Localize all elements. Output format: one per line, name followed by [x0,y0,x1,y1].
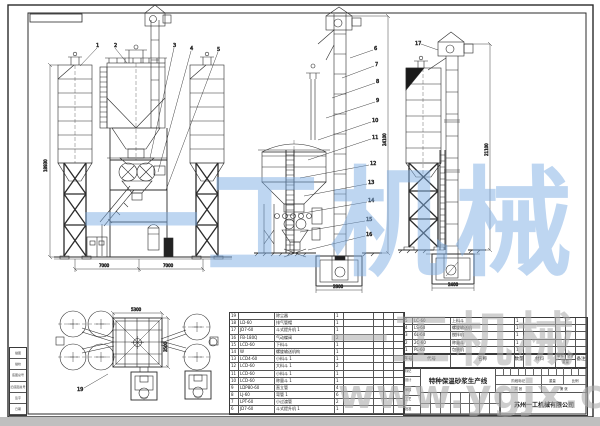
signature-cell [431,393,441,404]
bom-table-left: 19除尘器118LD-60排气管帽117JD7-60斗式提升机 1116FB-1… [229,312,405,415]
bom-cell [374,335,384,342]
bom-cell: 直立管 [275,385,335,392]
bom-cell [374,371,384,378]
bom-cell [384,320,394,327]
bom-cell: 10 [230,378,239,385]
signature-cell [441,404,451,415]
bom-cell [524,340,556,347]
bom-cell [524,332,556,339]
bom-header-no: 序号 [404,354,413,368]
stage-mark-cell [519,368,527,376]
bom-cell: LC-60 [413,318,451,325]
bom-cell: 1 [335,327,344,334]
stage-mark-cell [542,368,550,376]
bom-cell: 大料斗 1 [275,363,335,370]
binding-strip-label: 描校 [10,359,26,370]
bom-cell: 小过渡管 [275,399,335,406]
bom-cell [524,318,556,325]
bom-cell: LS-60 [413,325,451,332]
bom-cell: 上料斗 [451,318,515,325]
stage-label-row: 阶段标记 重量 比例 [496,376,587,385]
bom-cell [374,342,384,349]
bom-cell: 1 [515,340,524,347]
bom-cell: 1 [335,371,344,378]
signature-cell [421,393,431,404]
callout-14: 14 [368,198,374,204]
callout-4: 4 [190,46,193,52]
callout-17: 17 [415,41,421,47]
bom-cell: 1 [335,406,344,413]
dim-side-pit: 2800 [333,284,344,289]
bom-header-qty: 数量 [515,354,524,368]
signature-cell [461,404,471,415]
dim-right-height: 21100 [484,143,489,156]
bom-cell [374,363,384,370]
bom-cell: W [239,349,275,356]
right-silo-truss [196,163,218,256]
bom-cell: 搅拌机 [451,332,515,339]
bom-cell [384,392,394,399]
callout-11: 11 [372,135,378,141]
bom-header-remark: 备注 [576,354,587,368]
bom-cell: LCD-60 [239,363,275,370]
bom-cell [374,392,384,399]
stage-mark-cell [549,368,557,376]
signature-cell [470,404,480,415]
dim-side-height: 24100 [382,133,387,146]
bom-header-weight-total: 总计 [566,354,575,359]
bom-cell [566,325,576,332]
bom-cell [374,349,384,356]
signature-cell [470,393,480,404]
bom-cell [566,332,576,339]
bom-cell: 4 [335,385,344,392]
bom-header-code: 代号 [413,354,451,368]
bom-cell: 15 [230,342,239,349]
signature-cell [451,393,461,404]
callout-15: 15 [366,217,372,223]
signature-cell [480,393,490,404]
callout-3: 3 [173,43,176,49]
bom-cell: 18 [230,320,239,327]
bom-header-weight-label: 重量 [556,360,575,365]
signoff-label: 工艺 [404,396,420,405]
bom-cell: 斗式提升机 1 [275,327,335,334]
sheet-total: 共 张 [496,385,542,392]
bom-cell: 1 [335,320,344,327]
dim-plan-depth: 3500 [163,341,168,352]
bom-cell [566,340,576,347]
bom-cell: 3 [404,332,413,339]
bom-cell [384,327,394,334]
callout-7: 7 [375,62,378,68]
bom-cell: 1 [515,318,524,325]
stage-mark-cell [534,368,542,376]
bom-cell: 螺旋输送机 [451,325,515,332]
bom-cell [374,399,384,406]
signature-cell [480,404,490,415]
stage-mark-cell [526,368,534,376]
bom-cell: 12 [230,363,239,370]
bom-header-material: 材料 [524,354,556,368]
signoff-label: 设计 [404,377,420,386]
dim-front-height: 18930 [43,159,48,172]
bom-cell [374,327,384,334]
bom-cell: 1 [335,349,344,356]
bom-cell: 9 [230,385,239,392]
bom-cell [344,320,374,327]
bom-cell: 除尘器 [275,313,335,320]
bom-cell: 2 [335,363,344,370]
binding-edge-block: 描图描校底图总号旧底图总号签字日期 [9,347,27,416]
bom-cell [384,406,394,413]
title-block-signature-grid [421,393,501,415]
callout-13: 13 [368,180,374,186]
bom-cell [344,356,374,363]
bom-cell: 2C-60 [413,340,451,347]
bom-cell [556,318,566,325]
bom-cell: 8 [230,392,239,399]
bom-cell: 小料斗 1 [275,371,335,378]
silo-elevator-view: 17 21100 2400 [398,32,492,291]
stage-mark-cell [579,368,587,376]
bom-cell [556,340,566,347]
callout-19: 19 [77,387,83,393]
signature-cell [461,393,471,404]
bom-cell [374,356,384,363]
stage-mark-cell [564,368,572,376]
bom-cell [384,349,394,356]
bom-cell [556,325,566,332]
bom-cell [344,363,374,370]
stage-mark-cell [572,368,580,376]
bom-cell [344,335,374,342]
bom-cell: 称量斗 1 [275,378,335,385]
bom-cell: LCD-60 [239,371,275,378]
bom-cell [384,378,394,385]
bom-cell [344,406,374,413]
bom-cell [344,371,374,378]
bom-cell [524,325,556,332]
bom-cell [374,313,384,320]
bom-cell [344,378,374,385]
title-block-stage-grid: 阶段标记 重量 比例 共 张 第 张 [496,368,587,393]
bom-cell: LPT-60 [239,399,275,406]
signature-cell [421,404,431,415]
drawing-title: 特种保温砂浆生产线 [421,368,496,393]
binding-strip-label: 底图总号 [10,370,26,381]
dim-front-bay-right: 7000 [163,263,174,268]
bom-cell [576,332,587,339]
stage-mark-cells [496,368,587,376]
bom-cell: 16 [230,335,239,342]
dim-right-pit: 2400 [448,282,459,287]
left-silo-truss [64,163,86,256]
callout-9: 9 [376,98,379,104]
bom-cell: 弯管 1 [275,392,335,399]
bom-cell [344,385,374,392]
callout-6: 6 [374,46,377,52]
bom-cell: 2 [335,399,344,406]
bom-cell: 13 [230,356,239,363]
right-view-truss [409,163,438,247]
bom-cell: 19 [230,313,239,320]
bom-header-weight: 单件 总计 重量 [556,354,576,368]
bom-cell: LCD-60 [239,378,275,385]
bom-cell [374,378,384,385]
bom-cell: LCD-60 [239,342,275,349]
bom-cell: LJ-60 [239,392,275,399]
binding-strip-label: 日期 [10,404,26,415]
bom-cell [239,313,275,320]
bom-cell [566,318,576,325]
bom-cell: 1 [515,325,524,332]
bom-cell [576,318,587,325]
signoff-label: 批准 [404,406,420,415]
bom-cell [344,327,374,334]
bom-cell: 5 [404,318,413,325]
binding-strip-label: 签字 [10,393,26,404]
bom-cell [344,342,374,349]
binding-strip-label: 旧底图总号 [10,382,26,393]
bom-cell: 1 [335,356,344,363]
sheet-count-row: 共 张 第 张 [496,385,587,392]
stage-mark-cell [496,368,504,376]
bom-cell: 11 [230,371,239,378]
bom-cell [576,325,587,332]
dim-front-bay-left: 7000 [99,263,110,268]
page-edge-band [0,417,600,426]
stage-mark-cell [511,368,519,376]
bom-table-right: 5LC-60上料斗14LS-60螺旋输送机136L-60搅拌机122C-60称量… [403,317,588,355]
bom-cell: 6L-60 [413,332,451,339]
company-name: 苏州一工机械有限公司 [501,393,587,415]
title-block: 标记设计审核工艺批准 特种保温砂浆生产线 阶段标记 重量 比例 共 张 第 张 … [403,367,588,416]
callout-1: 1 [96,43,99,49]
bom-cell [384,371,394,378]
side-elevation-view: 24100 2800 6 7 8 9 10 11 12 13 14 15 16 [254,7,390,293]
bom-cell: 螺旋输送机构 [275,349,335,356]
signature-cell [441,393,451,404]
bom-cell: 1 [335,378,344,385]
bom-cell [374,385,384,392]
signature-cell [451,404,461,415]
callout-12: 12 [370,161,376,167]
callout-10: 10 [372,118,378,124]
bom-cell: LDP80-60 [239,385,275,392]
bom-cell [384,313,394,320]
title-block-signoff-column: 标记设计审核工艺批准 [404,368,421,415]
dim-plan-width: 5300 [131,307,142,312]
bom-cell: LD-60 [239,320,275,327]
bom-cell [374,406,384,413]
stage-mark-label: 阶段标记 [496,376,542,385]
bom-cell [384,399,394,406]
bom-cell: JD7-60 [239,327,275,334]
bom-header-weight-unit: 单件 [556,354,566,359]
bom-cell [384,356,394,363]
signature-cell [490,393,500,404]
stage-mark-cell [504,368,512,376]
bom-cell: LCD4-60 [239,356,275,363]
bom-cell [384,363,394,370]
bom-cell: JD7-60 [239,406,275,413]
bom-cell: 7 [230,399,239,406]
bom-cell: 称量斗 [451,340,515,347]
bom-cell [344,399,374,406]
bom-cell: 下料斗 [275,342,335,349]
bom-cell [384,335,394,342]
binding-strip-label: 描图 [10,348,26,359]
signature-cell [431,404,441,415]
bom-cell [384,342,394,349]
sheet-number: 第 张 [542,385,588,392]
bom-cell: 2 [335,335,344,342]
bom-cell: FB-180Q [239,335,275,342]
bom-cell [576,340,587,347]
signoff-label: 审核 [404,387,420,396]
bom-cell: 1 [335,342,344,349]
engineering-drawing-page: 18930 7000 7000 1 2 3 4 5 [0,0,600,426]
bom-cell: 气动蝶阀 [275,335,335,342]
bom-cell: 6 [335,392,344,399]
bom-cell [344,313,374,320]
bom-cell [384,385,394,392]
bom-cell: 1 [335,313,344,320]
callout-2: 2 [114,43,117,49]
signoff-label: 标记 [404,368,420,377]
callout-8: 8 [376,79,379,85]
bom-cell: 4 [404,325,413,332]
bom-cell: 小料斗 1 [275,356,335,363]
callout-5: 5 [217,47,220,53]
bom-cell: 2 [404,340,413,347]
weight-label: 重量 [542,376,565,385]
bom-cell [344,349,374,356]
bom-cell [374,320,384,327]
scale-label: 比例 [564,376,587,385]
bom-cell: 6 [230,406,239,413]
bom-cell: 14 [230,349,239,356]
stage-mark-cell [557,368,565,376]
front-elevation-view: 18930 7000 7000 1 2 3 4 5 [43,5,232,272]
bom-cell: 斗式提升机 1 [275,406,335,413]
callout-16: 16 [366,232,372,238]
plan-view: 5300 3500 19 [56,307,218,400]
bom-cell [344,392,374,399]
bom-cell: 排气管帽 [275,320,335,327]
signature-cell [490,404,500,415]
bom-cell [556,332,566,339]
bom-header-name: 名称 [451,354,515,368]
bom-cell: 1 [515,332,524,339]
bom-cell: 17 [230,327,239,334]
